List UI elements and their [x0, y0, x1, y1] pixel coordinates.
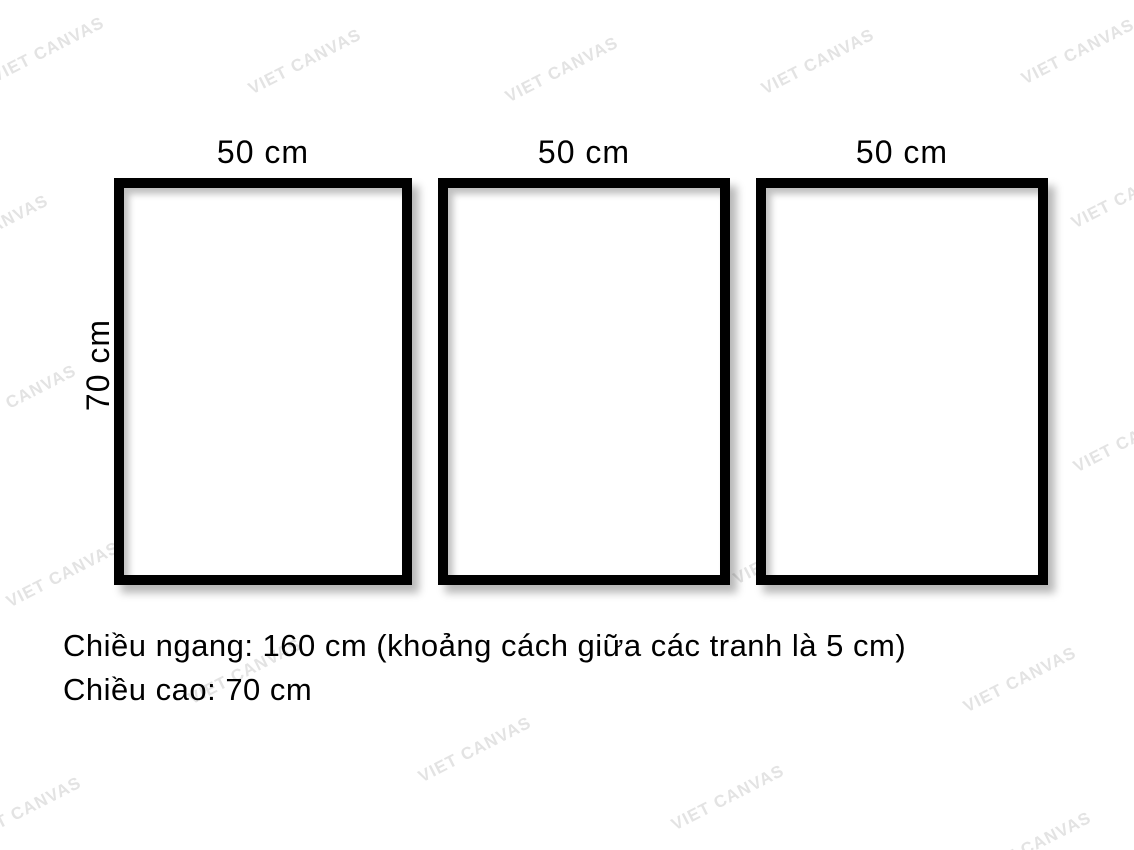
watermark-text: VIET CANVAS	[758, 25, 878, 99]
frame-3	[756, 178, 1048, 585]
dimensions-caption: Chiều ngang: 160 cm (khoảng cách giữa cá…	[63, 624, 906, 712]
watermark-text: VIET CANVAS	[1068, 159, 1134, 233]
frame-1-canvas-area	[124, 188, 402, 575]
caption-width-line: Chiều ngang: 160 cm (khoảng cách giữa cá…	[63, 624, 906, 668]
watermark-text: VIET CANVAS	[415, 713, 535, 787]
frame-3-width-label: 50 cm	[756, 132, 1048, 172]
caption-height-line: Chiều cao: 70 cm	[63, 668, 906, 712]
watermark-text: VIET CANVAS	[0, 361, 80, 435]
watermark-text: VIET CANVAS	[1070, 403, 1134, 477]
watermark-text: VIET CANVAS	[0, 773, 85, 847]
watermark-text: VIET CANVAS	[668, 761, 788, 835]
diagram-canvas: VIET CANVASVIET CANVASVIET CANVASVIET CA…	[0, 0, 1134, 850]
watermark-text: VIET CANVAS	[3, 538, 123, 612]
frame-2-width-label: 50 cm	[438, 132, 730, 172]
watermark-text: VIET CANVAS	[1018, 15, 1134, 89]
watermark-text: VIET CANVAS	[975, 808, 1095, 850]
frame-height-label: 70 cm	[78, 280, 118, 450]
frame-1-width-label: 50 cm	[114, 132, 412, 172]
watermark-text: VIET CANVAS	[0, 191, 52, 265]
watermark-text: VIET CANVAS	[0, 13, 108, 87]
frame-2	[438, 178, 730, 585]
watermark-text: VIET CANVAS	[960, 643, 1080, 717]
frame-1	[114, 178, 412, 585]
frame-3-canvas-area	[766, 188, 1038, 575]
watermark-text: VIET CANVAS	[245, 25, 365, 99]
frame-2-canvas-area	[448, 188, 720, 575]
watermark-text: VIET CANVAS	[502, 33, 622, 107]
